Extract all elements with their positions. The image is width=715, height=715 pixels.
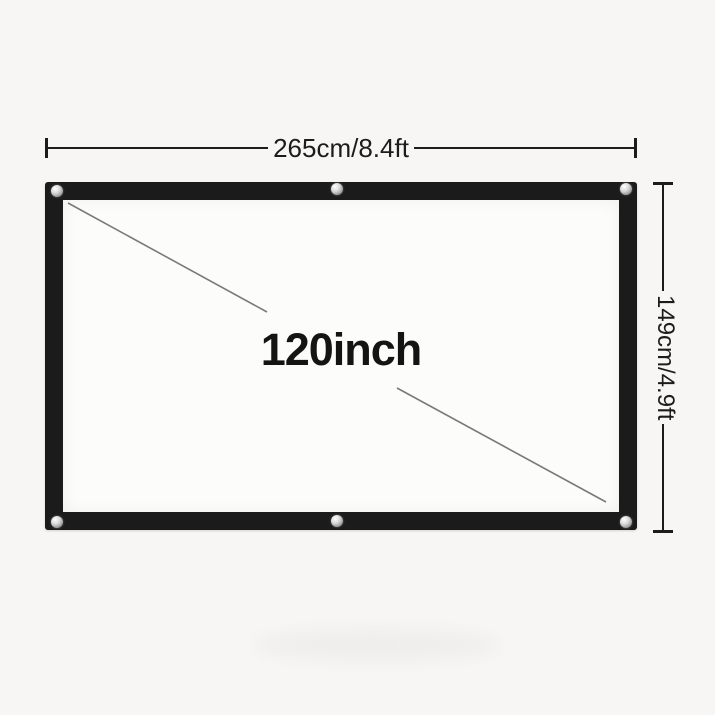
projector-screen-surface: 120inch bbox=[63, 200, 619, 512]
grommet-icon bbox=[331, 183, 343, 195]
projector-screen-frame: 120inch bbox=[45, 182, 637, 530]
height-dimension: 149cm/4.9ft bbox=[650, 182, 676, 533]
width-dimension: 265cm/8.4ft bbox=[45, 136, 637, 160]
dimension-cap-bottom bbox=[653, 530, 673, 533]
dimension-cap-right bbox=[634, 138, 637, 158]
dimension-line-segment bbox=[662, 424, 664, 530]
dimension-line-segment bbox=[414, 147, 634, 149]
height-dimension-label: 149cm/4.9ft bbox=[653, 295, 677, 420]
dimension-line-segment bbox=[48, 147, 268, 149]
background-smudge bbox=[255, 628, 500, 662]
dimension-line-segment bbox=[662, 185, 664, 291]
grommet-icon bbox=[51, 185, 63, 197]
width-dimension-label: 265cm/8.4ft bbox=[273, 135, 409, 161]
screen-size-label: 120inch bbox=[63, 324, 619, 376]
grommet-icon bbox=[51, 516, 63, 528]
product-diagram: 265cm/8.4ft 120inch 149cm/4.9ft bbox=[0, 0, 715, 715]
grommet-icon bbox=[620, 516, 632, 528]
grommet-icon bbox=[620, 183, 632, 195]
grommet-icon bbox=[331, 515, 343, 527]
